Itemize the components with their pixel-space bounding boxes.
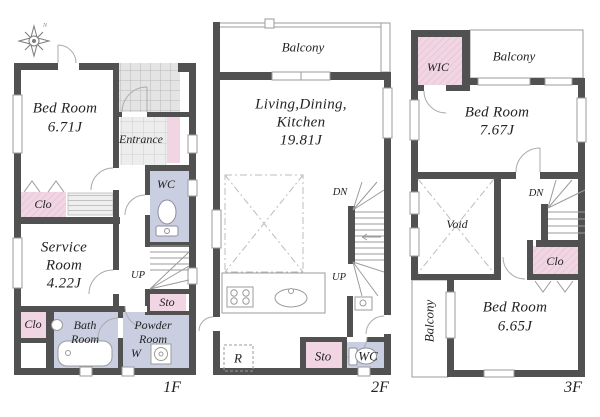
shoe-cabinet xyxy=(167,117,180,163)
toilet-icon xyxy=(156,200,178,236)
window xyxy=(13,238,22,288)
f2-up-label: UP xyxy=(332,273,346,284)
window xyxy=(446,292,455,338)
window xyxy=(545,78,572,85)
window xyxy=(188,180,197,196)
washer-icon xyxy=(151,344,171,364)
kitchen-sink-icon xyxy=(275,289,307,308)
window xyxy=(410,228,419,256)
window xyxy=(383,88,392,138)
window xyxy=(188,135,197,153)
f3-floor-label: 3F xyxy=(564,380,582,396)
window xyxy=(188,268,197,284)
f1-closet-upper-label: Clo xyxy=(34,198,51,210)
f1-bath-line2: Room xyxy=(71,333,99,345)
f2-ldk-size: 19.81J xyxy=(280,134,322,149)
window xyxy=(410,100,419,140)
f2-balcony-label: Balcony xyxy=(282,41,325,54)
f3-void-label: Void xyxy=(446,218,467,230)
counter-stripes xyxy=(68,193,113,215)
f3-closet-label: Clo xyxy=(546,255,563,267)
f1-closet-lower-label: Clo xyxy=(24,318,41,330)
f1-wc-label: WC xyxy=(157,178,175,190)
porch-tiles xyxy=(118,63,180,112)
f1-bedroom-size: 6.71J xyxy=(48,121,82,136)
f3-wic-label: WIC xyxy=(427,61,449,73)
closet-door-icon xyxy=(535,281,573,292)
f3-bedroom1-name: Bed Room xyxy=(465,106,529,121)
window xyxy=(358,367,370,376)
f1-service-room-line2: Room xyxy=(46,259,82,274)
window xyxy=(122,367,134,376)
f1-service-room-line1: Service xyxy=(41,241,87,256)
window xyxy=(410,192,419,214)
f1-powder-line1: Powder xyxy=(134,319,171,331)
compass-icon: N xyxy=(19,23,49,56)
bath-sink-icon xyxy=(52,320,63,331)
floor-plan-page: N xyxy=(0,0,600,417)
f1-powder-line2: Room xyxy=(139,333,167,345)
window xyxy=(577,98,586,142)
f1-up-label: UP xyxy=(131,271,145,282)
floor-2-plan xyxy=(199,19,392,376)
f2-ldk-line1: Living,Dining, xyxy=(255,98,347,113)
void-above-marker xyxy=(225,175,303,272)
stove-icon xyxy=(227,287,253,307)
window xyxy=(212,210,221,248)
window xyxy=(13,95,22,153)
f1-stairs xyxy=(150,246,189,289)
f1-bath-line1: Bath xyxy=(74,319,97,331)
f2-stairs xyxy=(353,182,384,296)
f2-wc-label: WC xyxy=(358,350,378,363)
f2-refrigerator-label: R xyxy=(234,352,242,365)
window xyxy=(478,78,530,85)
f1-entrance-label: Entrance xyxy=(119,133,163,145)
washbasin-icon xyxy=(355,297,372,310)
f1-bedroom-name: Bed Room xyxy=(33,102,97,117)
f3-bedroom1-size: 7.67J xyxy=(480,124,514,139)
compass-north-label: N xyxy=(42,23,48,29)
f3-bedroom2-size: 6.65J xyxy=(498,320,532,335)
f2-down-label: DN xyxy=(333,188,348,199)
closet-door-icon xyxy=(24,181,64,192)
f2-floor-label: 2F xyxy=(371,380,389,396)
window xyxy=(80,367,92,376)
f2-storage-label: Sto xyxy=(315,350,332,363)
f3-down-label: DN xyxy=(529,189,544,200)
kitchen-counter xyxy=(222,273,325,313)
f2-ldk-line2: Kitchen xyxy=(277,116,326,131)
f1-service-room-size: 4.22J xyxy=(47,277,81,292)
window xyxy=(484,370,514,377)
f3-bedroom2-name: Bed Room xyxy=(483,301,547,316)
f3-balcony-left-label: Balcony xyxy=(423,300,436,343)
f1-storage-label: Sto xyxy=(159,296,174,308)
f1-floor-label: 1F xyxy=(163,380,181,396)
f3-balcony-top-label: Balcony xyxy=(493,50,536,63)
f1-washer-label: W xyxy=(131,347,141,359)
